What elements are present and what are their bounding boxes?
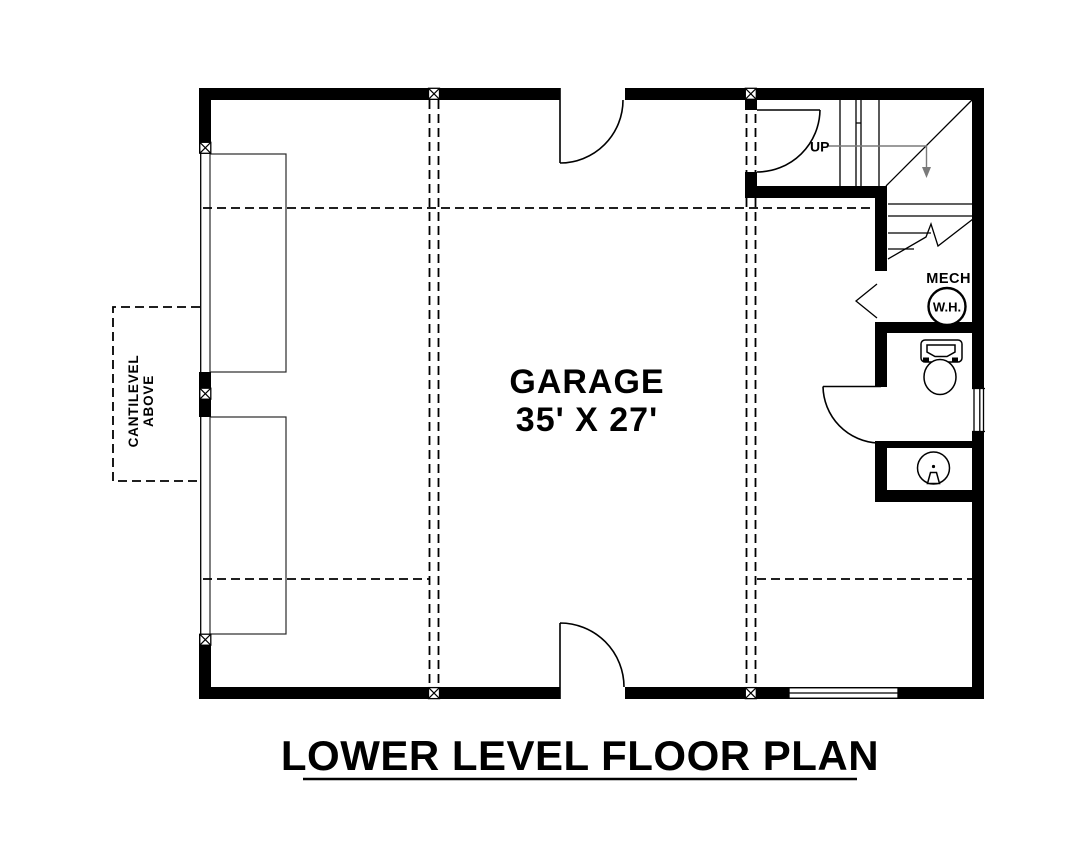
garage-door-panel-upper: [210, 154, 286, 372]
stair-direction-label: UP: [810, 139, 829, 155]
floor-plan-drawing: UP MECH. W.H. GARAGE 35' X 27' CANTILEVE…: [0, 0, 1080, 864]
stair-closet-wall: [745, 186, 887, 198]
wall-segment: [199, 687, 560, 699]
stair-closet-wall: [745, 100, 757, 110]
sink: [918, 452, 950, 484]
garage-dimensions: 35' X 27': [516, 401, 658, 439]
garage-door-panel-lower: [210, 417, 286, 634]
post-icon: [429, 688, 440, 699]
rear-window: [789, 688, 898, 698]
bathroom-wall: [875, 322, 972, 333]
post-icon: [429, 88, 440, 99]
sink-drain: [932, 465, 935, 468]
water-heater: W.H.: [929, 288, 966, 325]
water-heater-label: W.H.: [933, 300, 961, 315]
toilet-bowl: [924, 360, 956, 395]
wall-segment: [199, 88, 560, 100]
toilet-hinge: [923, 358, 929, 363]
sink-faucet-icon: [928, 473, 940, 484]
wall-segment: [625, 88, 984, 100]
bathroom-wall: [875, 333, 887, 387]
mech-room-wall: [875, 186, 887, 271]
post-icon: [200, 634, 211, 645]
vanity-partition: [887, 441, 972, 448]
floor-plan-sheet: UP MECH. W.H. GARAGE 35' X 27' CANTILEVE…: [0, 0, 1080, 864]
sheet-title-text: LOWER LEVEL FLOOR PLAN: [281, 732, 879, 779]
sheet-title: LOWER LEVEL FLOOR PLAN: [281, 732, 879, 779]
cantilever-label-line2: ABOVE: [141, 375, 156, 427]
post-icon: [200, 388, 211, 399]
post-icon: [745, 88, 756, 99]
bathroom-window: [972, 388, 986, 432]
bathroom-wall: [875, 490, 972, 502]
cantilever-label-line1: CANTILEVEL: [126, 355, 141, 448]
mech-room-label: MECH.: [926, 271, 975, 287]
garage-label: GARAGE: [509, 363, 664, 401]
toilet-hinge: [952, 358, 958, 363]
post-icon: [745, 688, 756, 699]
post-icon: [200, 142, 211, 153]
toilet-tank-lid: [927, 345, 955, 357]
